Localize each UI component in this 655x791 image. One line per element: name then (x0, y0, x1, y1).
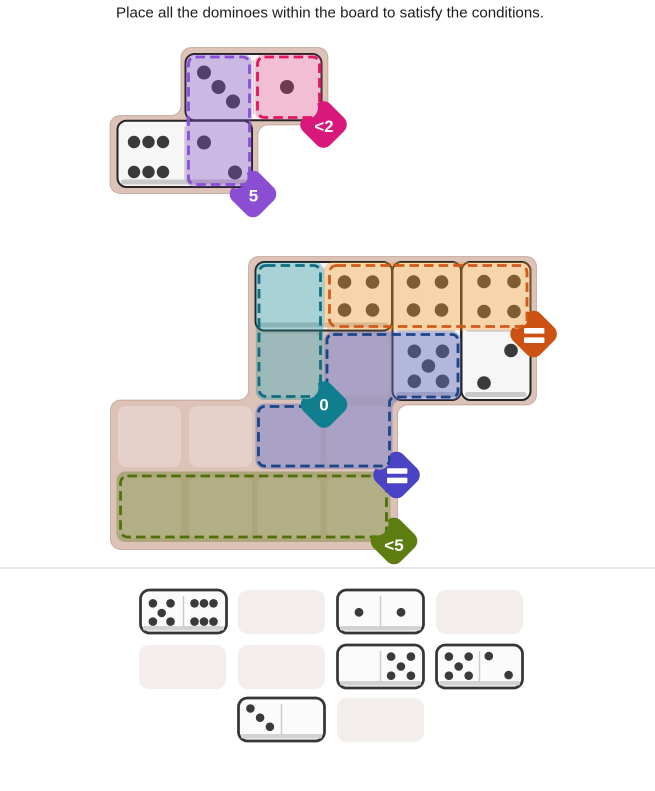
svg-text:Place all the dominoes within: Place all the dominoes within the board … (116, 5, 544, 22)
svg-text:0: 0 (319, 396, 328, 415)
svg-text:<5: <5 (384, 536, 403, 555)
svg-text:<2: <2 (314, 117, 333, 136)
svg-text:5: 5 (249, 187, 258, 206)
